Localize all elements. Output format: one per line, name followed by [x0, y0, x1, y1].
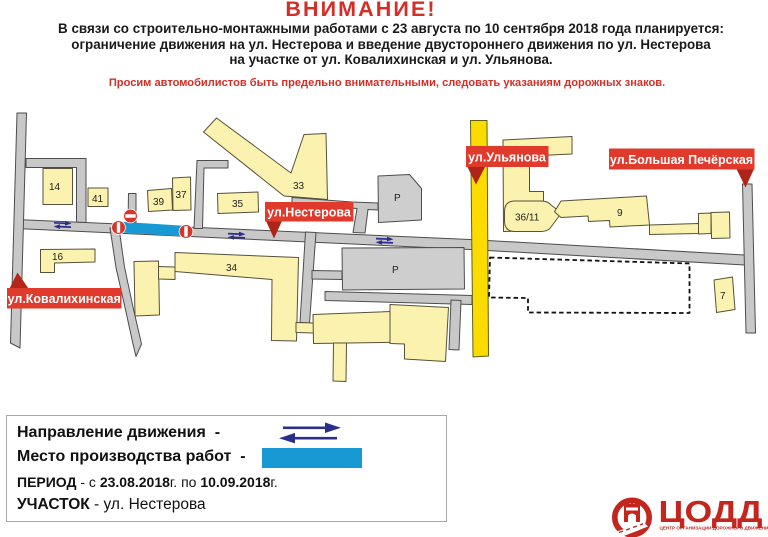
svg-text:ул.Большая Печёрская: ул.Большая Печёрская: [610, 153, 753, 167]
svg-text:33: 33: [293, 181, 305, 192]
svg-text:14: 14: [49, 182, 61, 193]
svg-text:16: 16: [52, 252, 64, 263]
svg-text:Р: Р: [394, 193, 401, 204]
svg-text:ул.Ульянова: ул.Ульянова: [468, 151, 547, 165]
svg-text:34: 34: [226, 263, 238, 274]
svg-text:Р: Р: [392, 265, 399, 276]
svg-text:9: 9: [617, 208, 623, 219]
svg-text:39: 39: [153, 197, 165, 208]
svg-text:ул.Ковалихинская: ул.Ковалихинская: [8, 292, 121, 306]
svg-text:36/11: 36/11: [515, 213, 540, 224]
svg-text:35: 35: [232, 199, 244, 210]
svg-text:ул.Нестерова: ул.Нестерова: [267, 206, 352, 220]
svg-text:ЦЕНТР ОРГАНИЗАЦИИ ДОРОЖНОГО ДВ: ЦЕНТР ОРГАНИЗАЦИИ ДОРОЖНОГО ДВИЖЕНИЯ: [660, 526, 768, 531]
svg-text:7: 7: [720, 291, 726, 302]
svg-text:41: 41: [92, 194, 104, 205]
svg-text:37: 37: [176, 190, 188, 201]
svg-text:ЦОДД: ЦОДД: [659, 495, 763, 529]
